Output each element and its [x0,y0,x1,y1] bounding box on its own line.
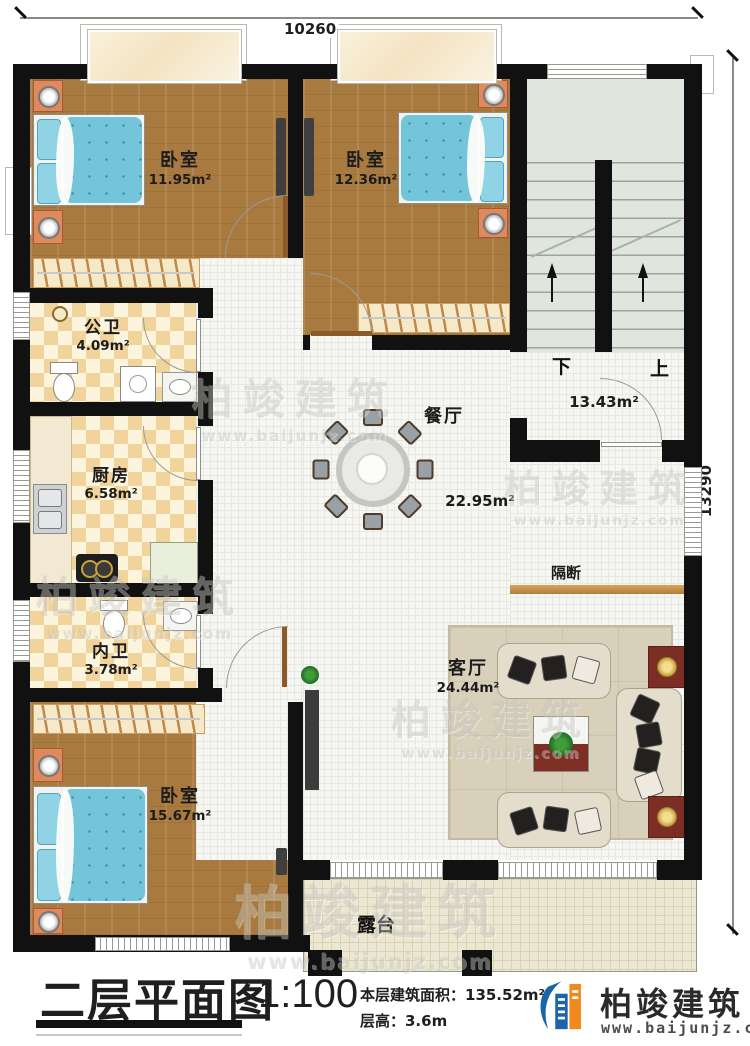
wall-segment [30,688,222,702]
wall-segment [372,335,510,350]
table-lamp [657,807,677,827]
door-leaf [282,627,287,687]
tv-panel [276,848,287,875]
wall-segment [662,440,684,462]
stair-up-label: 上 [650,354,669,381]
bed [33,114,145,206]
dining-chair [323,420,349,446]
floor-height-text: 层高：3.6m [360,1010,447,1031]
dining-table-set [318,415,428,525]
window [95,937,230,951]
wall-segment [30,402,213,416]
stair-arrow-stem [642,272,644,302]
room-label-stair-hall-area: 13.43m² [558,393,650,411]
wall-segment [198,288,213,318]
table-lamp [657,657,677,677]
dimension-top-value: 10260 [281,20,339,38]
door-leaf [196,319,201,372]
potted-plant [549,732,573,756]
brand-url: www.baijunjz.com [601,1019,750,1037]
potted-plant [301,666,319,684]
terrace-pier [462,950,492,976]
wall-segment [684,556,702,866]
kitchen-sink [33,484,67,534]
title-underline [36,1020,242,1028]
wardrobe [33,258,200,288]
dining-chair [313,460,330,480]
sofa-cushion [571,655,600,684]
fridge [150,542,198,584]
wall-segment [510,79,527,352]
toilet [53,373,75,402]
room-label-dining-name: 餐厅 [412,406,476,428]
tv-panel [304,118,314,196]
sliding-door [330,862,443,878]
room-label-inner-bath: 内卫 3.78m² [66,642,156,679]
door-leaf [283,196,288,257]
nightstand [33,908,63,934]
dining-chair [363,513,383,530]
stove [76,554,118,582]
dining-chair [397,493,423,519]
brand-logo-svg [536,976,594,1038]
dining-table [336,433,410,507]
sofa-cushion [542,805,569,832]
dining-chair [323,493,349,519]
partition-screen [510,585,687,594]
sofa-cushion [635,721,663,749]
side-table [648,796,686,838]
wall-segment [657,860,702,880]
room-label-living: 客厅 24.44m² [420,658,516,696]
door-leaf [311,331,372,336]
tv-panel [276,118,286,196]
wall-segment [684,64,702,467]
window [13,450,30,523]
stair-down-label: 下 [552,352,571,379]
partition-label: 隔断 [551,562,581,583]
nightstand [478,208,508,238]
room-label-kitchen: 厨房 6.58m² [66,466,156,503]
window [684,467,702,556]
room-label-bedroom2: 卧室 12.36m² [316,150,416,188]
wall-segment [303,860,330,880]
sofa-cushion [629,693,661,725]
floor-plan: 10260 13290 卧室 11.95m² 卧室 12.36m² 公卫 4.0… [0,0,750,1046]
window [13,292,30,340]
plan-scale: 1:100 [258,972,358,1017]
terrace-label: 露台 [357,910,395,937]
sofa [616,688,682,802]
window [547,64,647,79]
nightstand [478,80,508,108]
brand-logo-icon [536,976,594,1038]
toilet [103,610,125,638]
dimension-line-top [20,17,698,19]
room-label-dining-area: 22.95m² [440,492,520,510]
side-table [648,646,686,688]
dimension-line-right [732,58,734,934]
sofa [497,792,611,848]
door-leaf [196,427,201,480]
bathroom-sink [162,372,197,402]
room-label-bedroom1: 卧室 11.95m² [130,150,230,188]
dining-chair [417,460,434,480]
door-leaf [601,442,662,447]
wall-segment [595,160,612,352]
wardrobe [358,303,510,333]
room-label-bedroom3: 卧室 15.67m² [130,786,230,824]
wall-segment [303,335,310,350]
floor-area-text: 本层建筑面积：135.52m² [360,984,545,1005]
door-leaf [196,615,201,668]
bay-window [338,30,496,83]
wall-segment [288,702,303,952]
wall-segment [510,418,527,462]
wall-segment [30,288,213,303]
title-underline-thin [36,1034,242,1036]
wall-segment [527,440,600,462]
dining-chair [363,409,383,426]
wardrobe [33,704,205,734]
sofa-cushion [574,807,602,835]
stair-arrow-stem [551,272,553,302]
nightstand [33,210,63,244]
window [498,862,657,878]
media-console [305,690,319,790]
nightstand [33,80,63,112]
room-label-public-bath: 公卫 4.09m² [58,318,148,355]
washing-machine [120,366,156,402]
wall-segment [288,79,303,258]
sofa-cushion [509,806,539,836]
window [13,600,30,662]
nightstand [33,748,63,782]
sofa-cushion [540,654,567,681]
wall-segment [30,583,213,597]
wall-segment [443,860,498,880]
bay-window [88,30,241,83]
wall-segment [198,372,213,426]
